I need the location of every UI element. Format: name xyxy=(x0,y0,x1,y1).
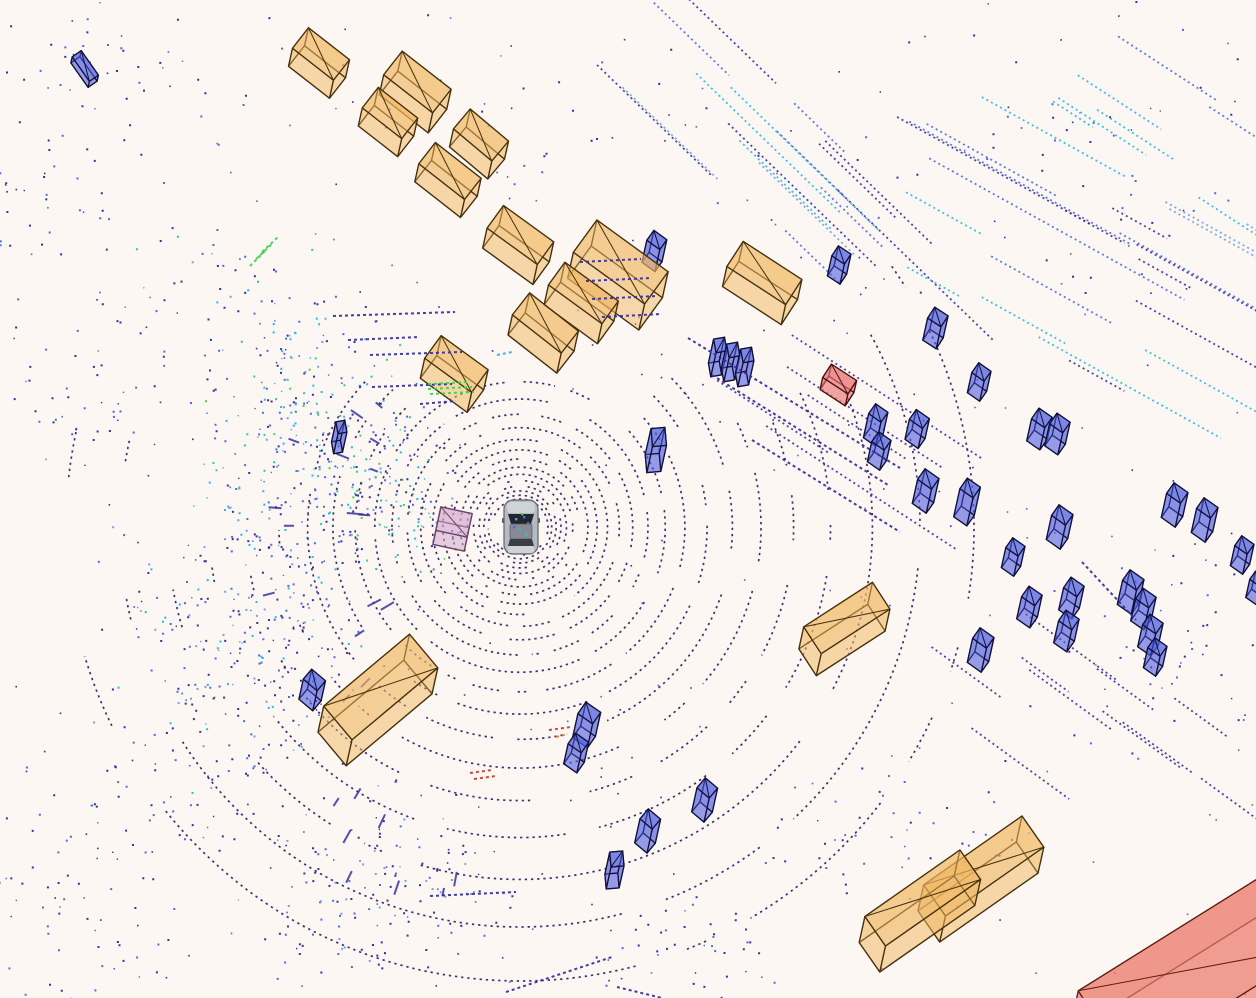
bbox-car[interactable] xyxy=(799,582,890,675)
bbox-pedestrian[interactable] xyxy=(1191,498,1218,542)
bbox-pedestrian[interactable] xyxy=(967,363,991,401)
ego-vehicle xyxy=(502,500,540,554)
lidar-bev-viewport[interactable] xyxy=(0,0,1256,998)
bbox-pedestrian[interactable] xyxy=(1017,586,1042,628)
lidar-scene-canvas[interactable] xyxy=(0,0,1256,998)
bbox-pedestrian[interactable] xyxy=(605,851,624,889)
bbox-unknown[interactable] xyxy=(433,507,472,551)
bbox-barrier[interactable] xyxy=(820,364,857,406)
bbox-pedestrian[interactable] xyxy=(827,246,851,284)
bbox-pedestrian[interactable] xyxy=(923,307,948,349)
bbox-pedestrian[interactable] xyxy=(1054,610,1079,652)
bbox-pedestrian[interactable] xyxy=(967,628,994,672)
bbox-bigtruck[interactable] xyxy=(1069,869,1256,998)
bbox-pedestrian[interactable] xyxy=(692,778,718,822)
bbox-pedestrian[interactable] xyxy=(1161,483,1188,527)
bbox-car[interactable] xyxy=(483,205,554,284)
bbox-pedestrian[interactable] xyxy=(71,51,99,88)
bbox-pedestrian[interactable] xyxy=(1001,538,1025,576)
bbox-car[interactable] xyxy=(289,28,350,99)
bbox-pedestrian[interactable] xyxy=(1059,577,1084,619)
bounding-boxes-layer xyxy=(71,28,1256,998)
bbox-car[interactable] xyxy=(420,336,488,413)
bbox-pedestrian[interactable] xyxy=(635,809,661,853)
bbox-car[interactable] xyxy=(723,241,802,324)
point-cloud-layer xyxy=(0,0,1256,998)
bbox-pedestrian[interactable] xyxy=(1046,505,1073,549)
bbox-pedestrian[interactable] xyxy=(645,427,666,472)
bbox-pedestrian[interactable] xyxy=(1230,536,1254,574)
bbox-car[interactable] xyxy=(859,850,980,972)
bbox-pedestrian[interactable] xyxy=(332,420,347,453)
bbox-pedestrian[interactable] xyxy=(905,409,929,448)
bbox-pedestrian[interactable] xyxy=(1246,571,1256,605)
bbox-pedestrian[interactable] xyxy=(564,733,589,773)
bbox-pedestrian[interactable] xyxy=(954,478,981,526)
